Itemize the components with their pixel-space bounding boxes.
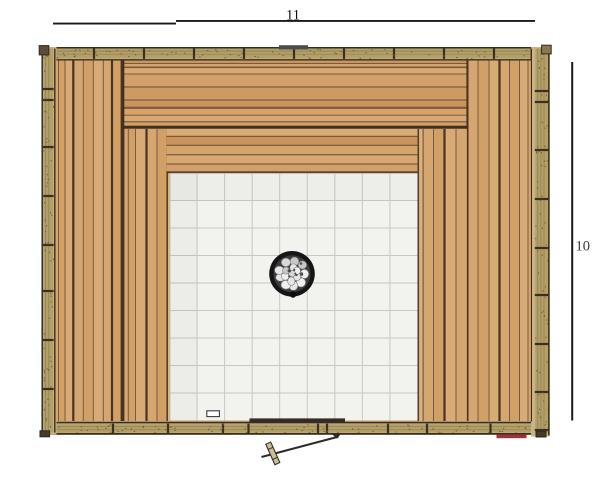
svg-text:11: 11: [286, 8, 300, 24]
svg-text:10: 10: [576, 239, 591, 255]
